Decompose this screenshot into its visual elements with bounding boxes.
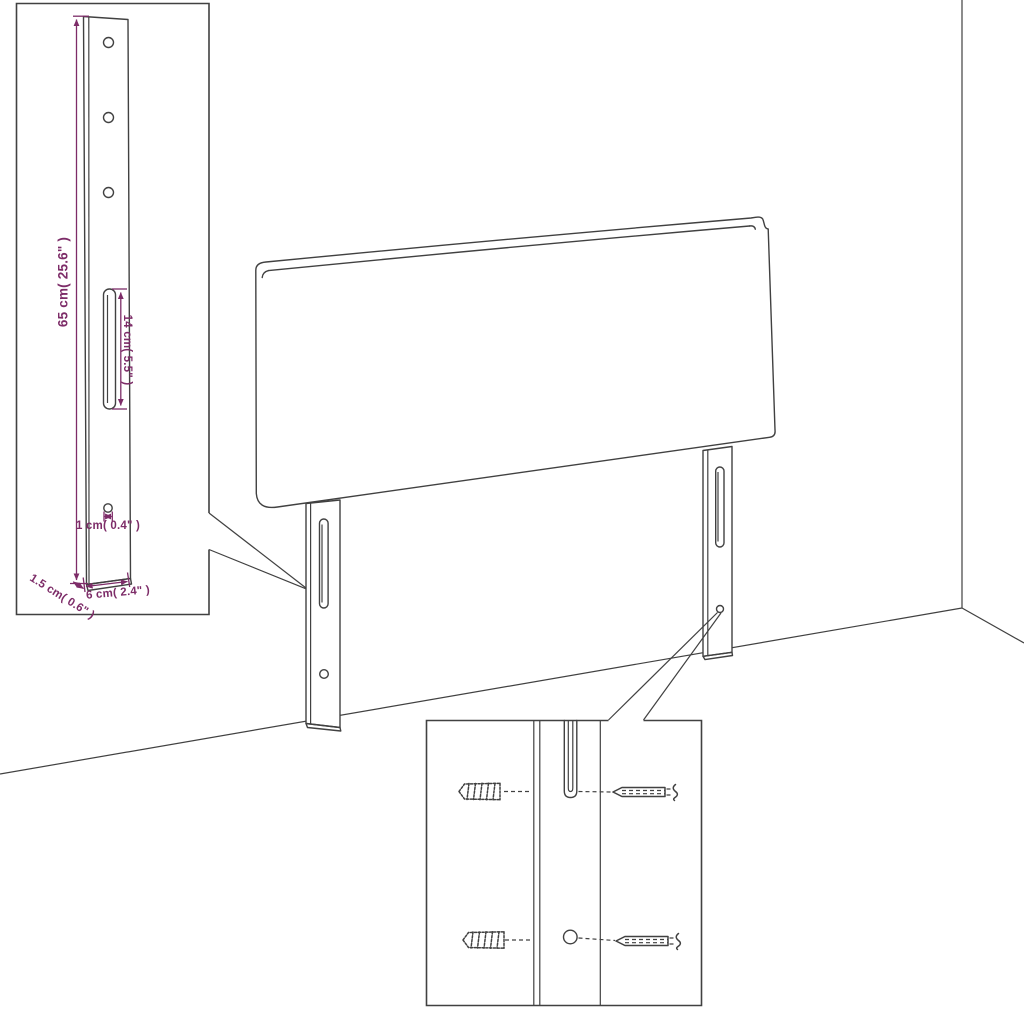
callout-line <box>209 513 306 588</box>
diagram-canvas: 65 cm( 25.6" ) 14 cm( 5.5" ) 1 cm( 0.4" … <box>0 0 1024 1024</box>
right-leg <box>703 447 733 660</box>
hardware-row-bottom <box>463 932 680 950</box>
detail-strip-hole <box>564 930 578 944</box>
detail-strip-slot-outer <box>564 721 577 798</box>
dimension-label-hole: 1 cm( 0.4" ) <box>76 520 140 532</box>
dimension-label-height: 65 cm( 25.6" ) <box>56 237 71 327</box>
left-leg <box>306 500 341 731</box>
guide-line-screw-top <box>579 792 613 793</box>
floor-line-right <box>962 608 1024 643</box>
detail-leg <box>84 17 132 591</box>
hardware-detail-inset <box>427 721 702 1006</box>
dimension-label-slot: 14 cm( 5.5" ) <box>121 315 133 386</box>
headboard-panel-outline <box>256 217 775 507</box>
wall-plug-icon <box>463 932 504 948</box>
callout-wedge-left-inset <box>209 513 306 589</box>
screw-icon <box>616 934 680 950</box>
dim-thickness-line <box>73 582 83 589</box>
callout-line <box>644 613 722 720</box>
screw-icon <box>613 785 677 801</box>
headboard-panel <box>256 217 775 507</box>
wall-plug-icon <box>459 783 500 799</box>
line-art <box>0 0 1024 1024</box>
callout-line <box>209 550 306 589</box>
floor-line-left <box>0 608 962 774</box>
detail-strip <box>534 721 601 1006</box>
detail-strip-slot-inner <box>568 721 573 792</box>
guide-line-screw-bottom <box>579 938 616 941</box>
